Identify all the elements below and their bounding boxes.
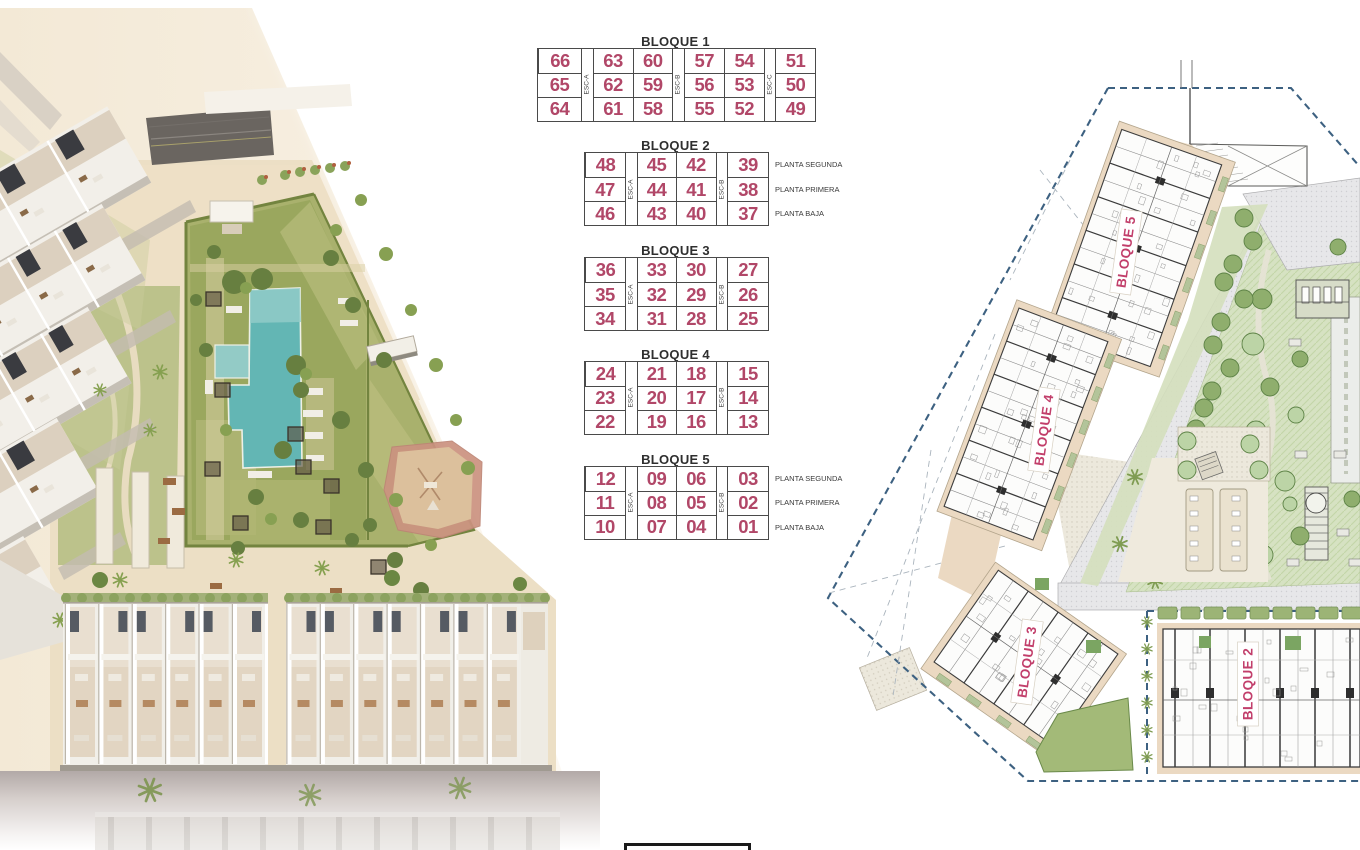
svg-text:BLOQUE 2: BLOQUE 2 (1241, 648, 1256, 720)
